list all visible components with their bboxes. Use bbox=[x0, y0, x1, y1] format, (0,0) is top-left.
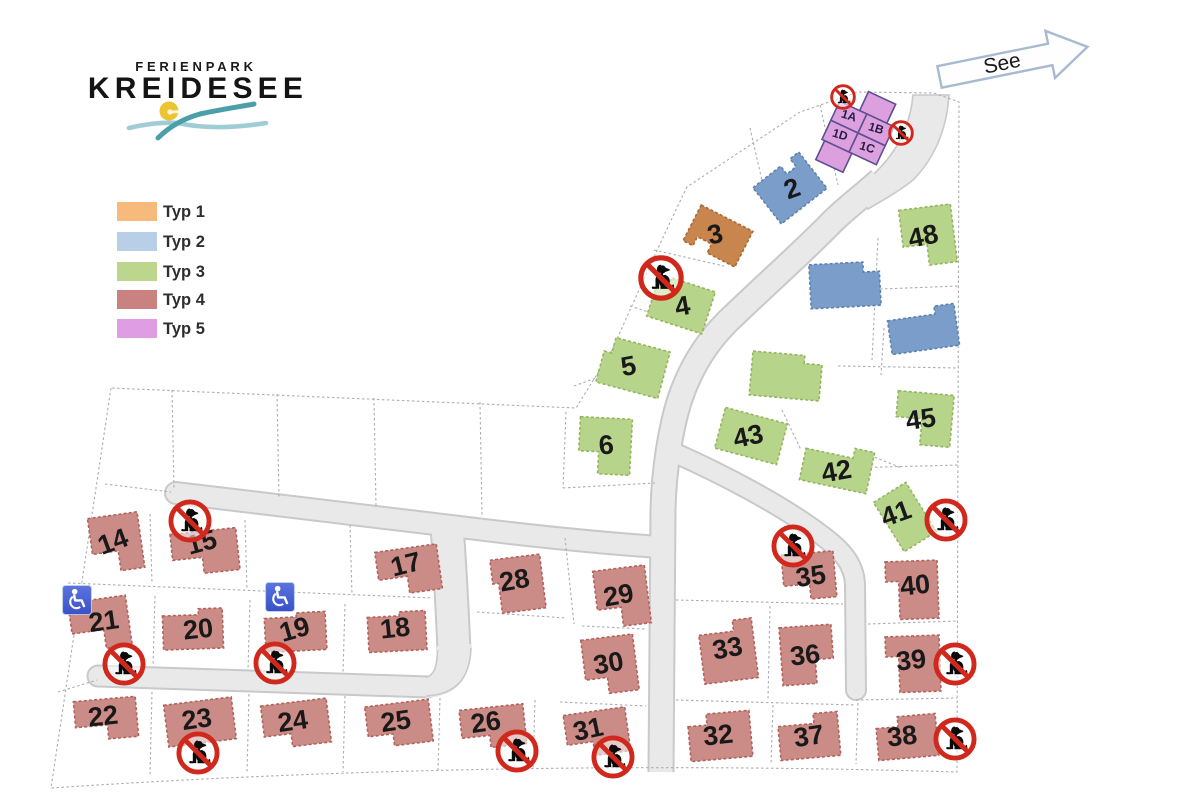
svg-text:6: 6 bbox=[597, 429, 615, 460]
svg-text:48: 48 bbox=[905, 218, 941, 254]
svg-text:33: 33 bbox=[710, 631, 745, 666]
svg-text:Typ 5: Typ 5 bbox=[163, 320, 205, 338]
svg-text:25: 25 bbox=[379, 704, 413, 738]
svg-text:42: 42 bbox=[819, 454, 854, 489]
svg-text:24: 24 bbox=[276, 704, 310, 738]
svg-text:26: 26 bbox=[469, 705, 503, 739]
svg-text:Typ 4: Typ 4 bbox=[163, 291, 206, 309]
svg-text:Typ 2: Typ 2 bbox=[163, 233, 205, 251]
svg-text:36: 36 bbox=[789, 639, 822, 672]
svg-text:Typ 1: Typ 1 bbox=[163, 203, 205, 221]
svg-text:40: 40 bbox=[899, 569, 932, 602]
svg-text:32: 32 bbox=[702, 719, 735, 752]
svg-text:28: 28 bbox=[497, 563, 532, 598]
svg-text:23: 23 bbox=[180, 702, 214, 736]
svg-text:45: 45 bbox=[904, 402, 938, 436]
svg-text:43: 43 bbox=[730, 418, 766, 454]
svg-text:18: 18 bbox=[379, 612, 412, 645]
svg-text:38: 38 bbox=[886, 720, 919, 753]
svg-text:Typ 3: Typ 3 bbox=[163, 263, 205, 281]
svg-text:39: 39 bbox=[895, 644, 928, 677]
svg-text:22: 22 bbox=[87, 700, 120, 733]
svg-text:20: 20 bbox=[182, 613, 215, 646]
svg-text:KREIDESEE: KREIDESEE bbox=[88, 72, 308, 105]
svg-text:29: 29 bbox=[601, 578, 636, 613]
svg-text:30: 30 bbox=[591, 646, 626, 681]
svg-text:37: 37 bbox=[792, 719, 826, 753]
